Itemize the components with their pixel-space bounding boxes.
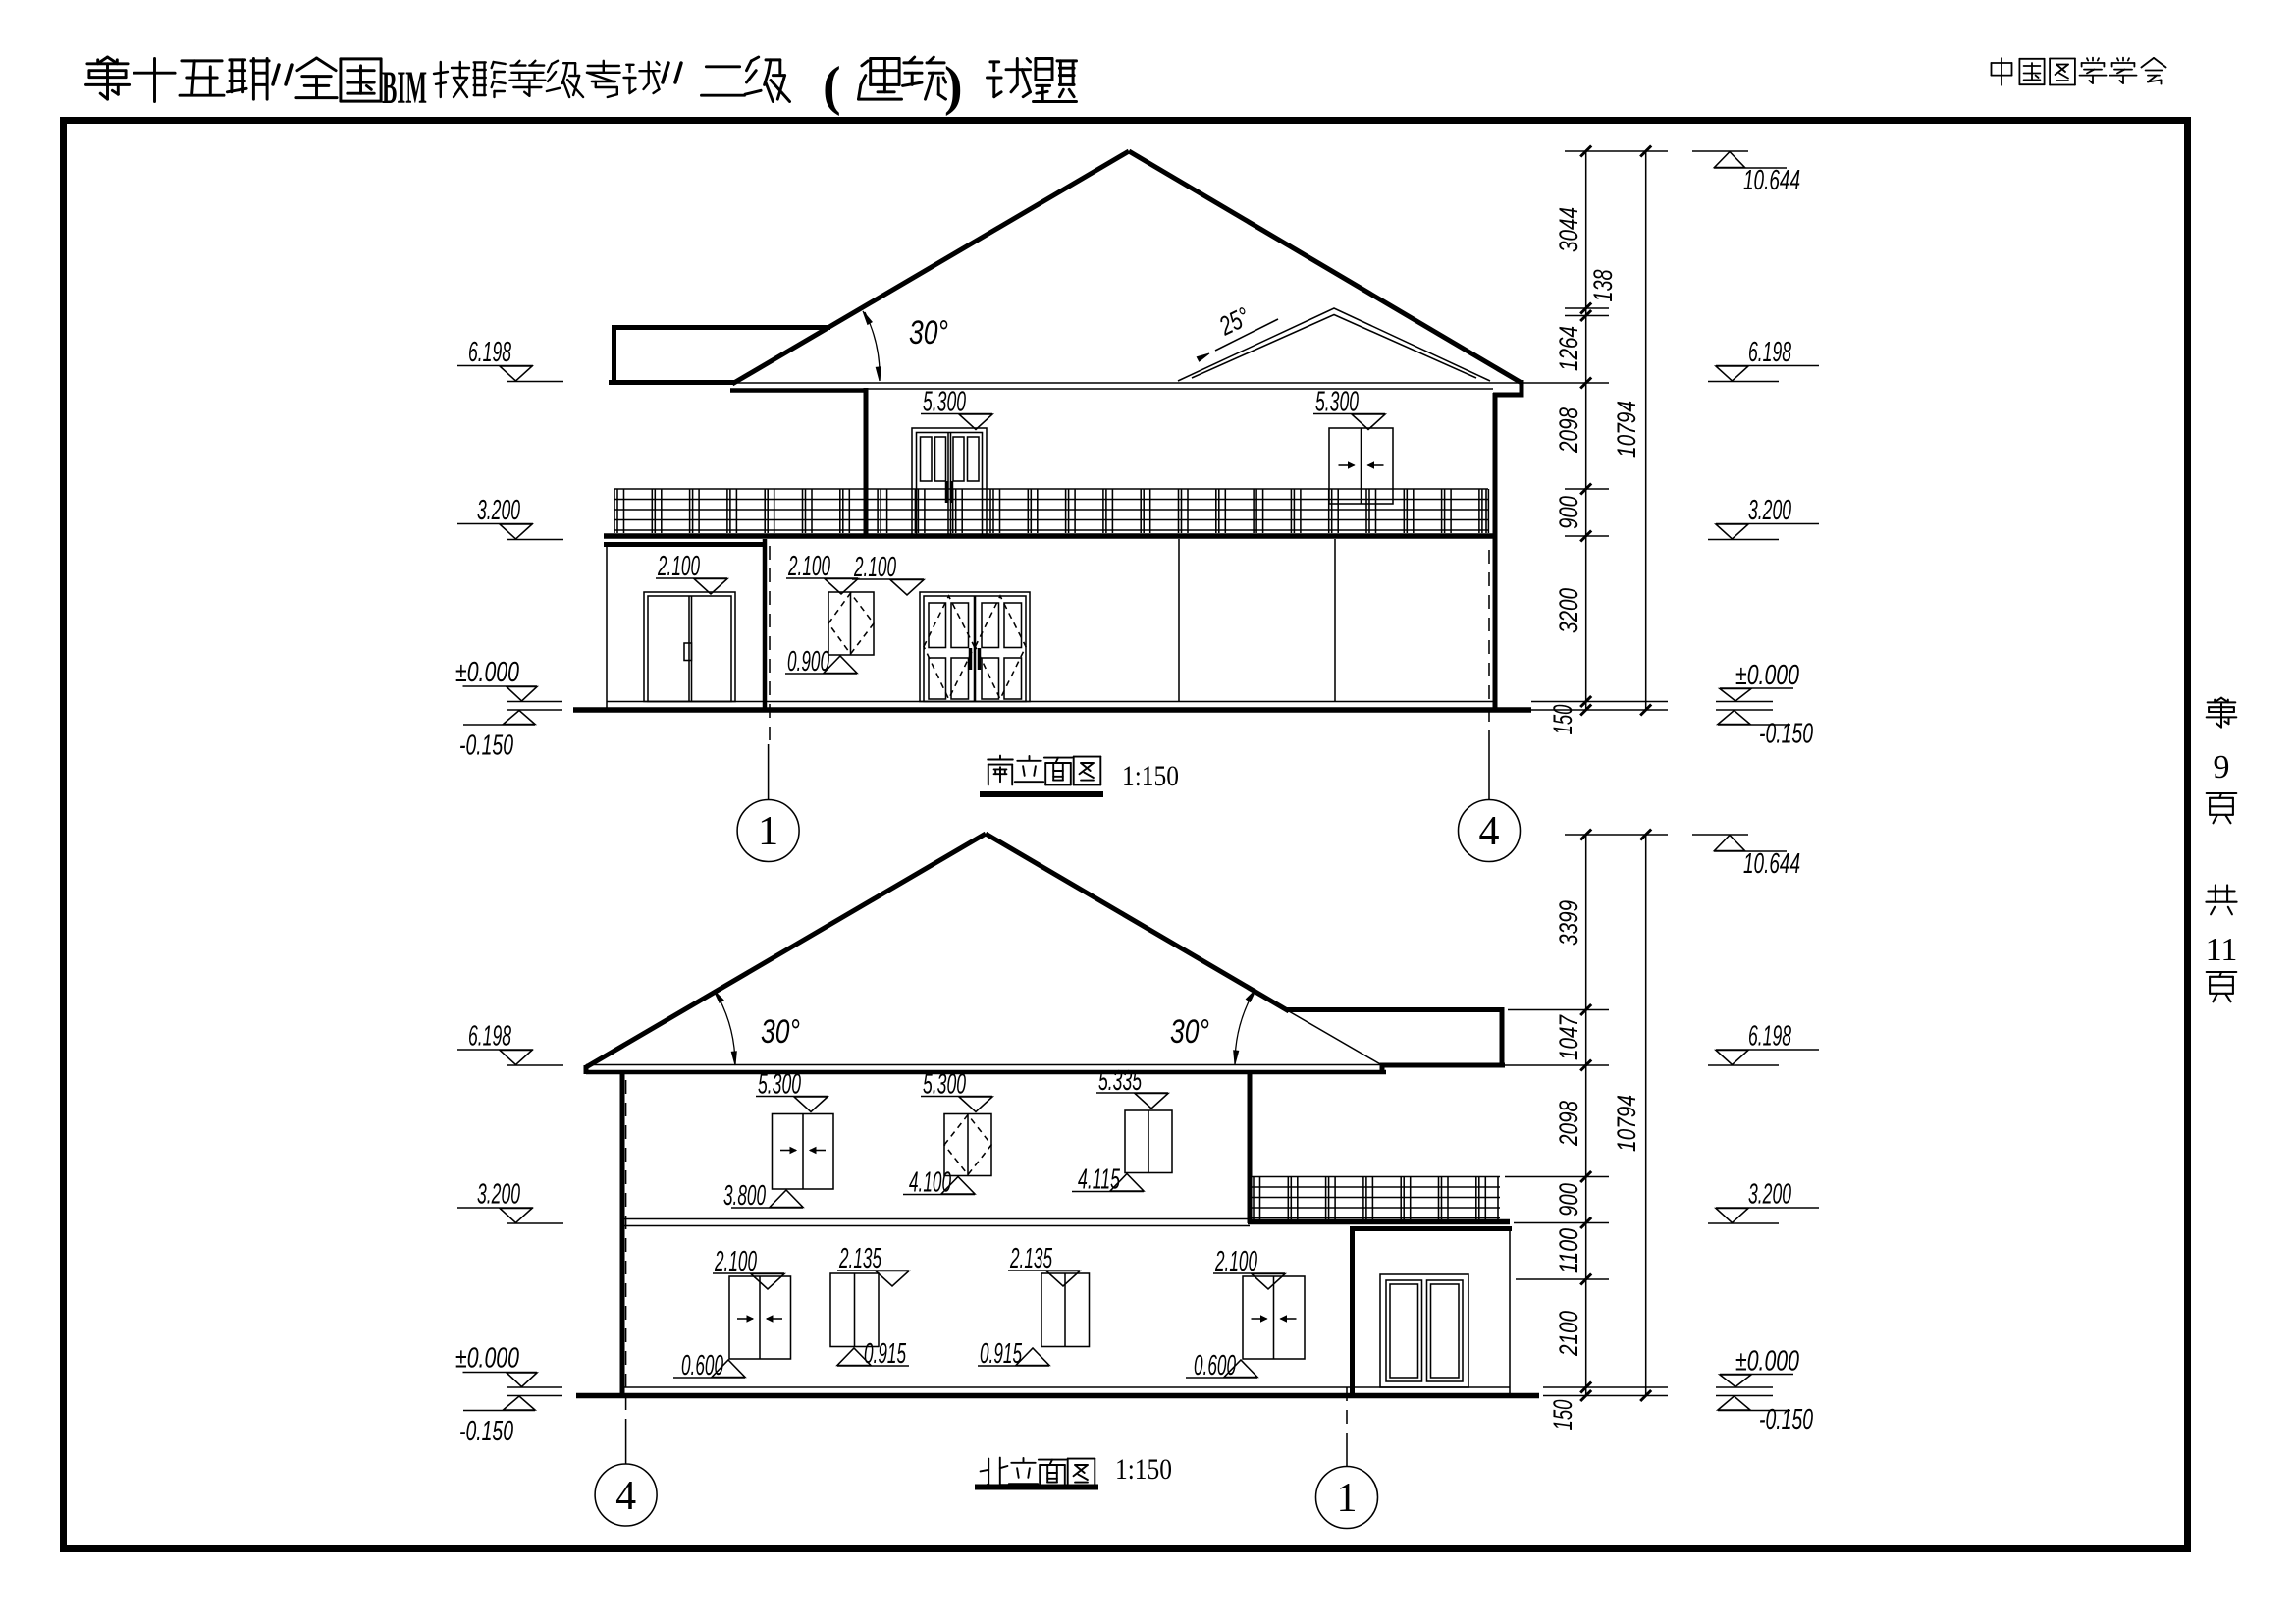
svg-text:-0.150: -0.150 — [459, 730, 513, 762]
svg-text:2098: 2098 — [1554, 1101, 1583, 1147]
svg-text:±0.000: ±0.000 — [1735, 660, 1799, 691]
svg-text:3399: 3399 — [1554, 900, 1583, 946]
svg-text:4.100: 4.100 — [909, 1167, 951, 1199]
svg-text:150: 150 — [1548, 1400, 1577, 1431]
svg-text:6.198: 6.198 — [468, 1021, 511, 1053]
svg-text:3.200: 3.200 — [1748, 1179, 1791, 1211]
svg-text:0.600: 0.600 — [1194, 1350, 1236, 1381]
svg-text:5.300: 5.300 — [923, 387, 966, 418]
svg-text:1: 1 — [758, 809, 778, 854]
svg-text:4: 4 — [1479, 809, 1500, 854]
svg-text:2.100: 2.100 — [853, 552, 896, 583]
svg-text:3.200: 3.200 — [1748, 495, 1791, 526]
svg-text:1: 1 — [1337, 1476, 1358, 1521]
svg-text:BIM: BIM — [382, 62, 427, 114]
svg-text:3044: 3044 — [1554, 207, 1583, 252]
svg-text:2.100: 2.100 — [1214, 1246, 1257, 1277]
svg-text:-0.150: -0.150 — [1759, 1404, 1813, 1435]
svg-text:9: 9 — [2214, 749, 2230, 785]
svg-text:2.135: 2.135 — [1009, 1243, 1052, 1274]
svg-text:5.300: 5.300 — [758, 1069, 801, 1101]
svg-text:30°: 30° — [761, 1013, 800, 1051]
svg-text:): ) — [944, 56, 963, 117]
svg-text:138: 138 — [1588, 270, 1618, 302]
svg-text:3.800: 3.800 — [723, 1180, 766, 1212]
svg-text:1:150: 1:150 — [1115, 1453, 1172, 1486]
svg-text:10794: 10794 — [1612, 401, 1641, 458]
svg-text:5.300: 5.300 — [923, 1069, 966, 1101]
svg-text:6.198: 6.198 — [1748, 1021, 1791, 1053]
svg-text:1:150: 1:150 — [1122, 760, 1179, 792]
svg-text:5.300: 5.300 — [1315, 387, 1359, 418]
svg-text:3200: 3200 — [1554, 588, 1583, 633]
svg-text:1100: 1100 — [1554, 1228, 1583, 1273]
svg-text:±0.000: ±0.000 — [455, 657, 519, 688]
svg-text:±0.000: ±0.000 — [1735, 1346, 1799, 1378]
svg-text:10.644: 10.644 — [1743, 848, 1800, 880]
svg-text:900: 900 — [1554, 1183, 1583, 1217]
svg-text:3.200: 3.200 — [477, 1179, 520, 1211]
svg-text:10794: 10794 — [1612, 1095, 1641, 1152]
svg-text:(: ( — [823, 56, 841, 117]
svg-text:2.100: 2.100 — [657, 551, 700, 582]
svg-text:6.198: 6.198 — [468, 337, 511, 368]
svg-text:1264: 1264 — [1554, 326, 1583, 371]
svg-text:1047: 1047 — [1554, 1014, 1583, 1060]
svg-text:30°: 30° — [909, 314, 948, 352]
svg-text:6.198: 6.198 — [1748, 337, 1791, 368]
svg-text:-0.150: -0.150 — [459, 1416, 513, 1447]
svg-text:150: 150 — [1548, 705, 1577, 735]
svg-text:-0.150: -0.150 — [1759, 719, 1813, 750]
svg-text:2.100: 2.100 — [714, 1246, 757, 1277]
svg-text:11: 11 — [2206, 932, 2238, 968]
svg-text:2.100: 2.100 — [787, 551, 830, 582]
svg-text:5.335: 5.335 — [1098, 1065, 1143, 1097]
svg-text:2100: 2100 — [1554, 1311, 1583, 1357]
svg-text:4: 4 — [615, 1474, 636, 1519]
svg-text:0.900: 0.900 — [787, 646, 829, 677]
svg-text:0.915: 0.915 — [864, 1338, 907, 1370]
svg-text:4.115: 4.115 — [1078, 1164, 1121, 1196]
svg-text:0.600: 0.600 — [681, 1350, 723, 1381]
svg-text:10.644: 10.644 — [1743, 165, 1800, 196]
svg-text:3.200: 3.200 — [477, 495, 520, 526]
svg-text:900: 900 — [1554, 496, 1583, 529]
svg-text:2098: 2098 — [1554, 407, 1583, 454]
svg-text:2.135: 2.135 — [838, 1243, 881, 1274]
svg-text:0.915: 0.915 — [980, 1338, 1023, 1370]
svg-text:±0.000: ±0.000 — [455, 1343, 519, 1375]
svg-text:30°: 30° — [1170, 1013, 1209, 1051]
